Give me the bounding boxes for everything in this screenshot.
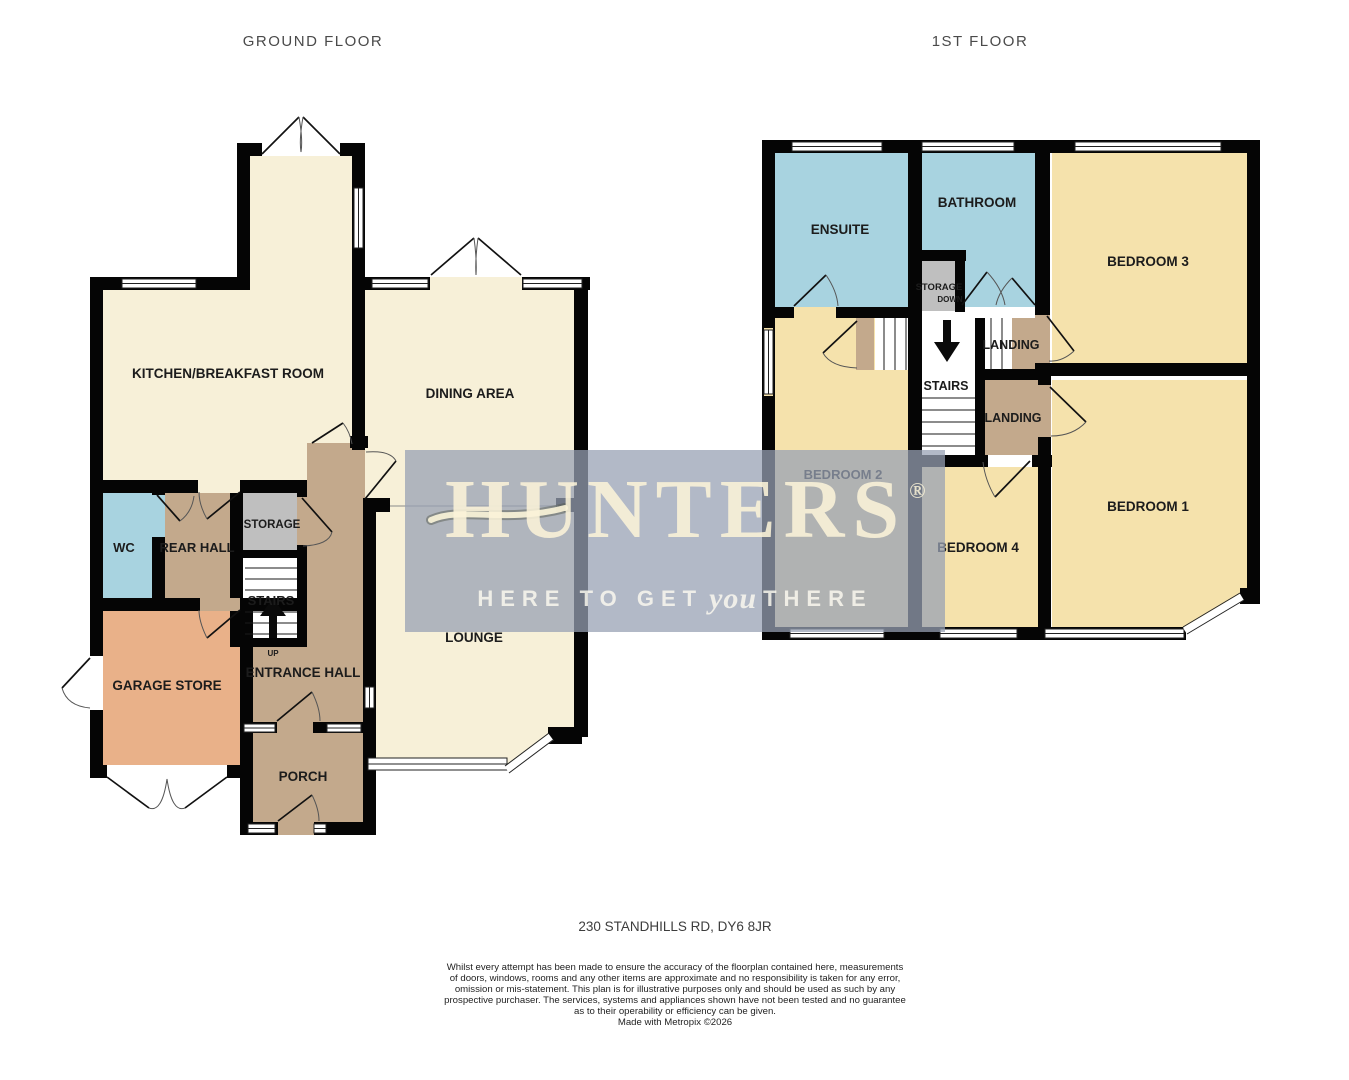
label-storage-first: STORAGE xyxy=(916,282,963,293)
hunters-brand-text: HUNTERS xyxy=(445,468,907,552)
label-bedroom1: BEDROOM 1 xyxy=(1107,499,1189,514)
tagline-post: THERE xyxy=(763,586,873,611)
down-arrow-icon xyxy=(943,320,951,344)
label-ensuite: ENSUITE xyxy=(811,222,870,237)
tagline-you: you xyxy=(709,582,757,615)
label-stairs-ground: STAIRS xyxy=(248,593,295,608)
label-storage-ground: STORAGE xyxy=(244,519,301,531)
label-kitchen: KITCHEN/BREAKFAST ROOM xyxy=(132,366,324,381)
landing-door-strip xyxy=(856,318,874,370)
floorplan-page: GROUND FLOOR 1ST FLOOR xyxy=(0,0,1349,1080)
label-porch: PORCH xyxy=(279,769,328,784)
property-address: 230 STANDHILLS RD, DY6 8JR xyxy=(578,919,771,934)
label-bedroom4: BEDROOM 4 xyxy=(937,540,1019,555)
room-kitchen-projection xyxy=(250,156,352,292)
label-bathroom: BATHROOM xyxy=(938,195,1017,210)
label-lounge: LOUNGE xyxy=(445,630,503,645)
label-bedroom3: BEDROOM 3 xyxy=(1107,254,1189,269)
room-entrance-hall-lower xyxy=(253,640,307,722)
label-up: UP xyxy=(267,649,279,658)
label-down: DOWN xyxy=(937,295,963,304)
label-landing-lower: LANDING xyxy=(985,411,1042,425)
room-kitchen-lower xyxy=(103,443,307,482)
label-landing-upper: LANDING xyxy=(983,338,1040,352)
tagline-pre: HERE TO GET xyxy=(477,586,703,611)
label-rear-hall: REAR HALL xyxy=(159,540,234,555)
hunters-watermark: HUNTERS ® HERE TO GETyouTHERE xyxy=(405,450,945,632)
disclaimer-line: as to their operability or efficiency ca… xyxy=(345,1007,1005,1018)
hunters-tagline: HERE TO GETyouTHERE xyxy=(405,582,945,616)
metropix-credit: Made with Metropix ©2026 xyxy=(345,1018,1005,1029)
label-entrance-hall: ENTRANCE HALL xyxy=(246,665,361,680)
disclaimer-text: Whilst every attempt has been made to en… xyxy=(345,963,1005,1028)
stairs-side-treads-left xyxy=(875,318,910,370)
label-garage: GARAGE STORE xyxy=(112,678,221,693)
disclaimer-line: prospective purchaser. The services, sys… xyxy=(345,996,1005,1007)
label-dining: DINING AREA xyxy=(426,386,515,401)
label-stairs-first: STAIRS xyxy=(924,379,969,393)
label-wc: WC xyxy=(113,540,135,555)
registered-trademark-icon: ® xyxy=(909,478,925,504)
up-arrow-icon xyxy=(269,614,277,638)
